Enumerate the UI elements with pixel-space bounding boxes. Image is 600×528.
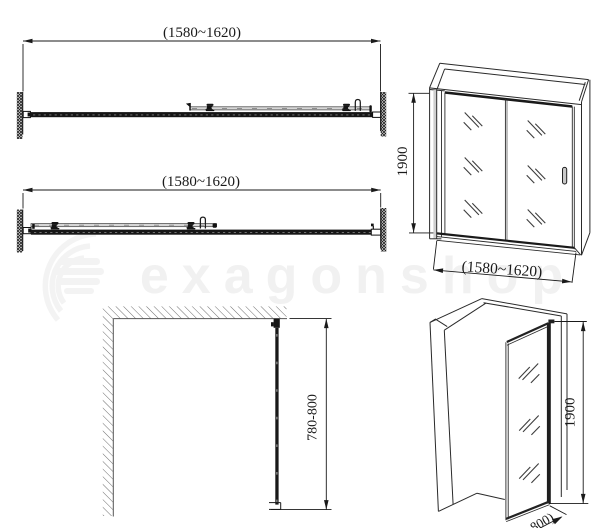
svg-text:(1580~1620): (1580~1620) bbox=[163, 25, 241, 41]
svg-text:1900: 1900 bbox=[395, 147, 411, 177]
svg-text:780-800: 780-800 bbox=[306, 394, 321, 441]
svg-text:(1580~1620): (1580~1620) bbox=[162, 174, 240, 190]
svg-text:1900: 1900 bbox=[562, 398, 578, 428]
